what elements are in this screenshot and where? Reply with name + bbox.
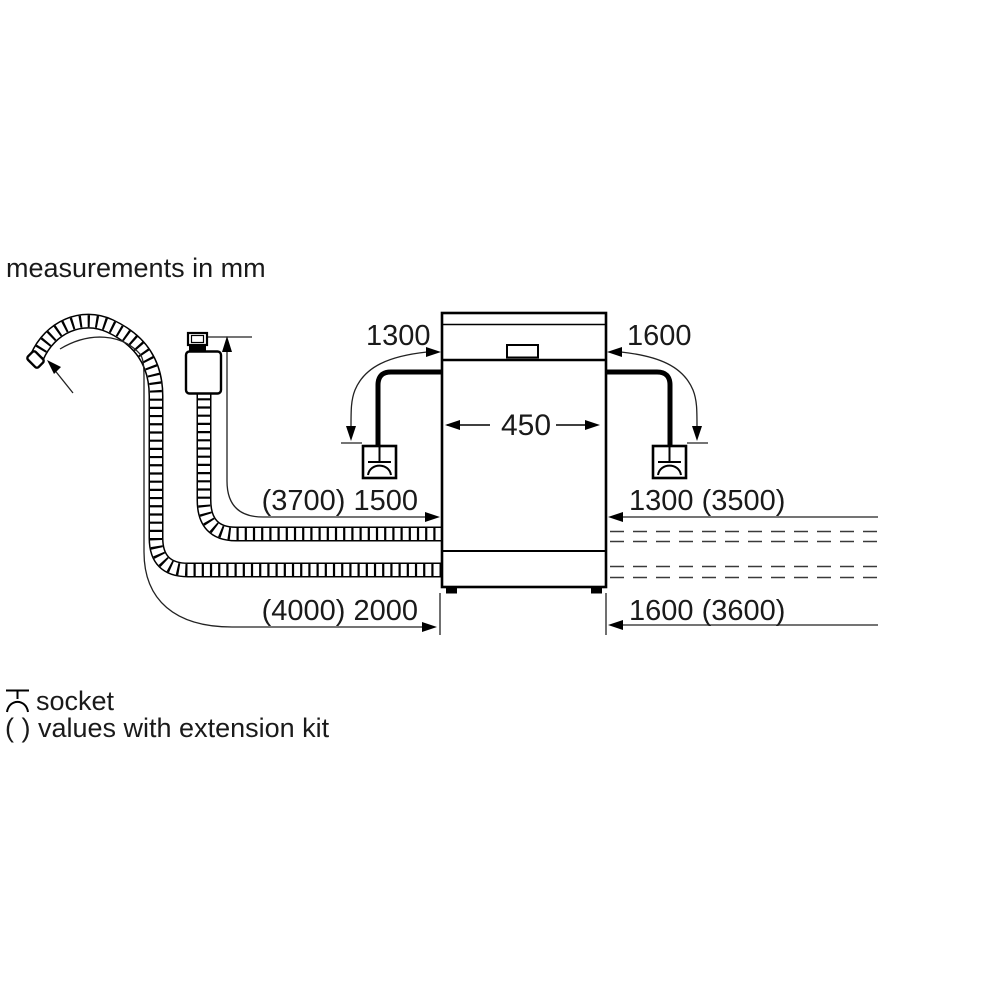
label-appliance-width-450: 450 bbox=[486, 409, 566, 443]
label-cable-left-1300: 1300 bbox=[366, 320, 431, 353]
socket-icon-right bbox=[653, 446, 686, 478]
label-drain-hose-4000-2000: (4000) 2000 bbox=[238, 595, 418, 628]
label-right-lower-1600-3600: 1600 (3600) bbox=[629, 595, 785, 628]
foot-left bbox=[446, 587, 457, 594]
arrow-up bbox=[222, 336, 232, 352]
legend-socket-icon bbox=[6, 690, 29, 712]
dishwasher-outline bbox=[442, 313, 606, 594]
installation-diagram: measurements in mm 1300 1600 450 (3700) … bbox=[0, 0, 1000, 1000]
power-cable-right bbox=[605, 372, 670, 445]
door-handle bbox=[507, 345, 538, 358]
aquastop-valve-icon bbox=[186, 333, 221, 394]
socket-icon-left bbox=[363, 446, 396, 478]
label-cable-right-1600: 1600 bbox=[627, 320, 692, 353]
arrow-right bbox=[425, 512, 440, 522]
power-cable-left bbox=[378, 372, 443, 445]
note-measurements: measurements in mm bbox=[6, 253, 266, 284]
label-right-upper-1300-3500: 1300 (3500) bbox=[629, 485, 785, 518]
foot-right bbox=[591, 587, 602, 594]
arrow-left bbox=[607, 347, 622, 357]
extension-lines bbox=[440, 593, 606, 635]
diagram-canvas bbox=[0, 0, 1000, 1000]
arrow-down bbox=[692, 426, 702, 441]
arrow-down bbox=[346, 426, 356, 441]
arrow-right bbox=[422, 622, 437, 632]
hose-continuation-dashed bbox=[610, 532, 878, 578]
label-supply-hose-3700-1500: (3700) 1500 bbox=[238, 485, 418, 518]
legend-extension-label: ( ) values with extension kit bbox=[5, 713, 329, 744]
arrow-to-nozzle bbox=[47, 360, 61, 374]
